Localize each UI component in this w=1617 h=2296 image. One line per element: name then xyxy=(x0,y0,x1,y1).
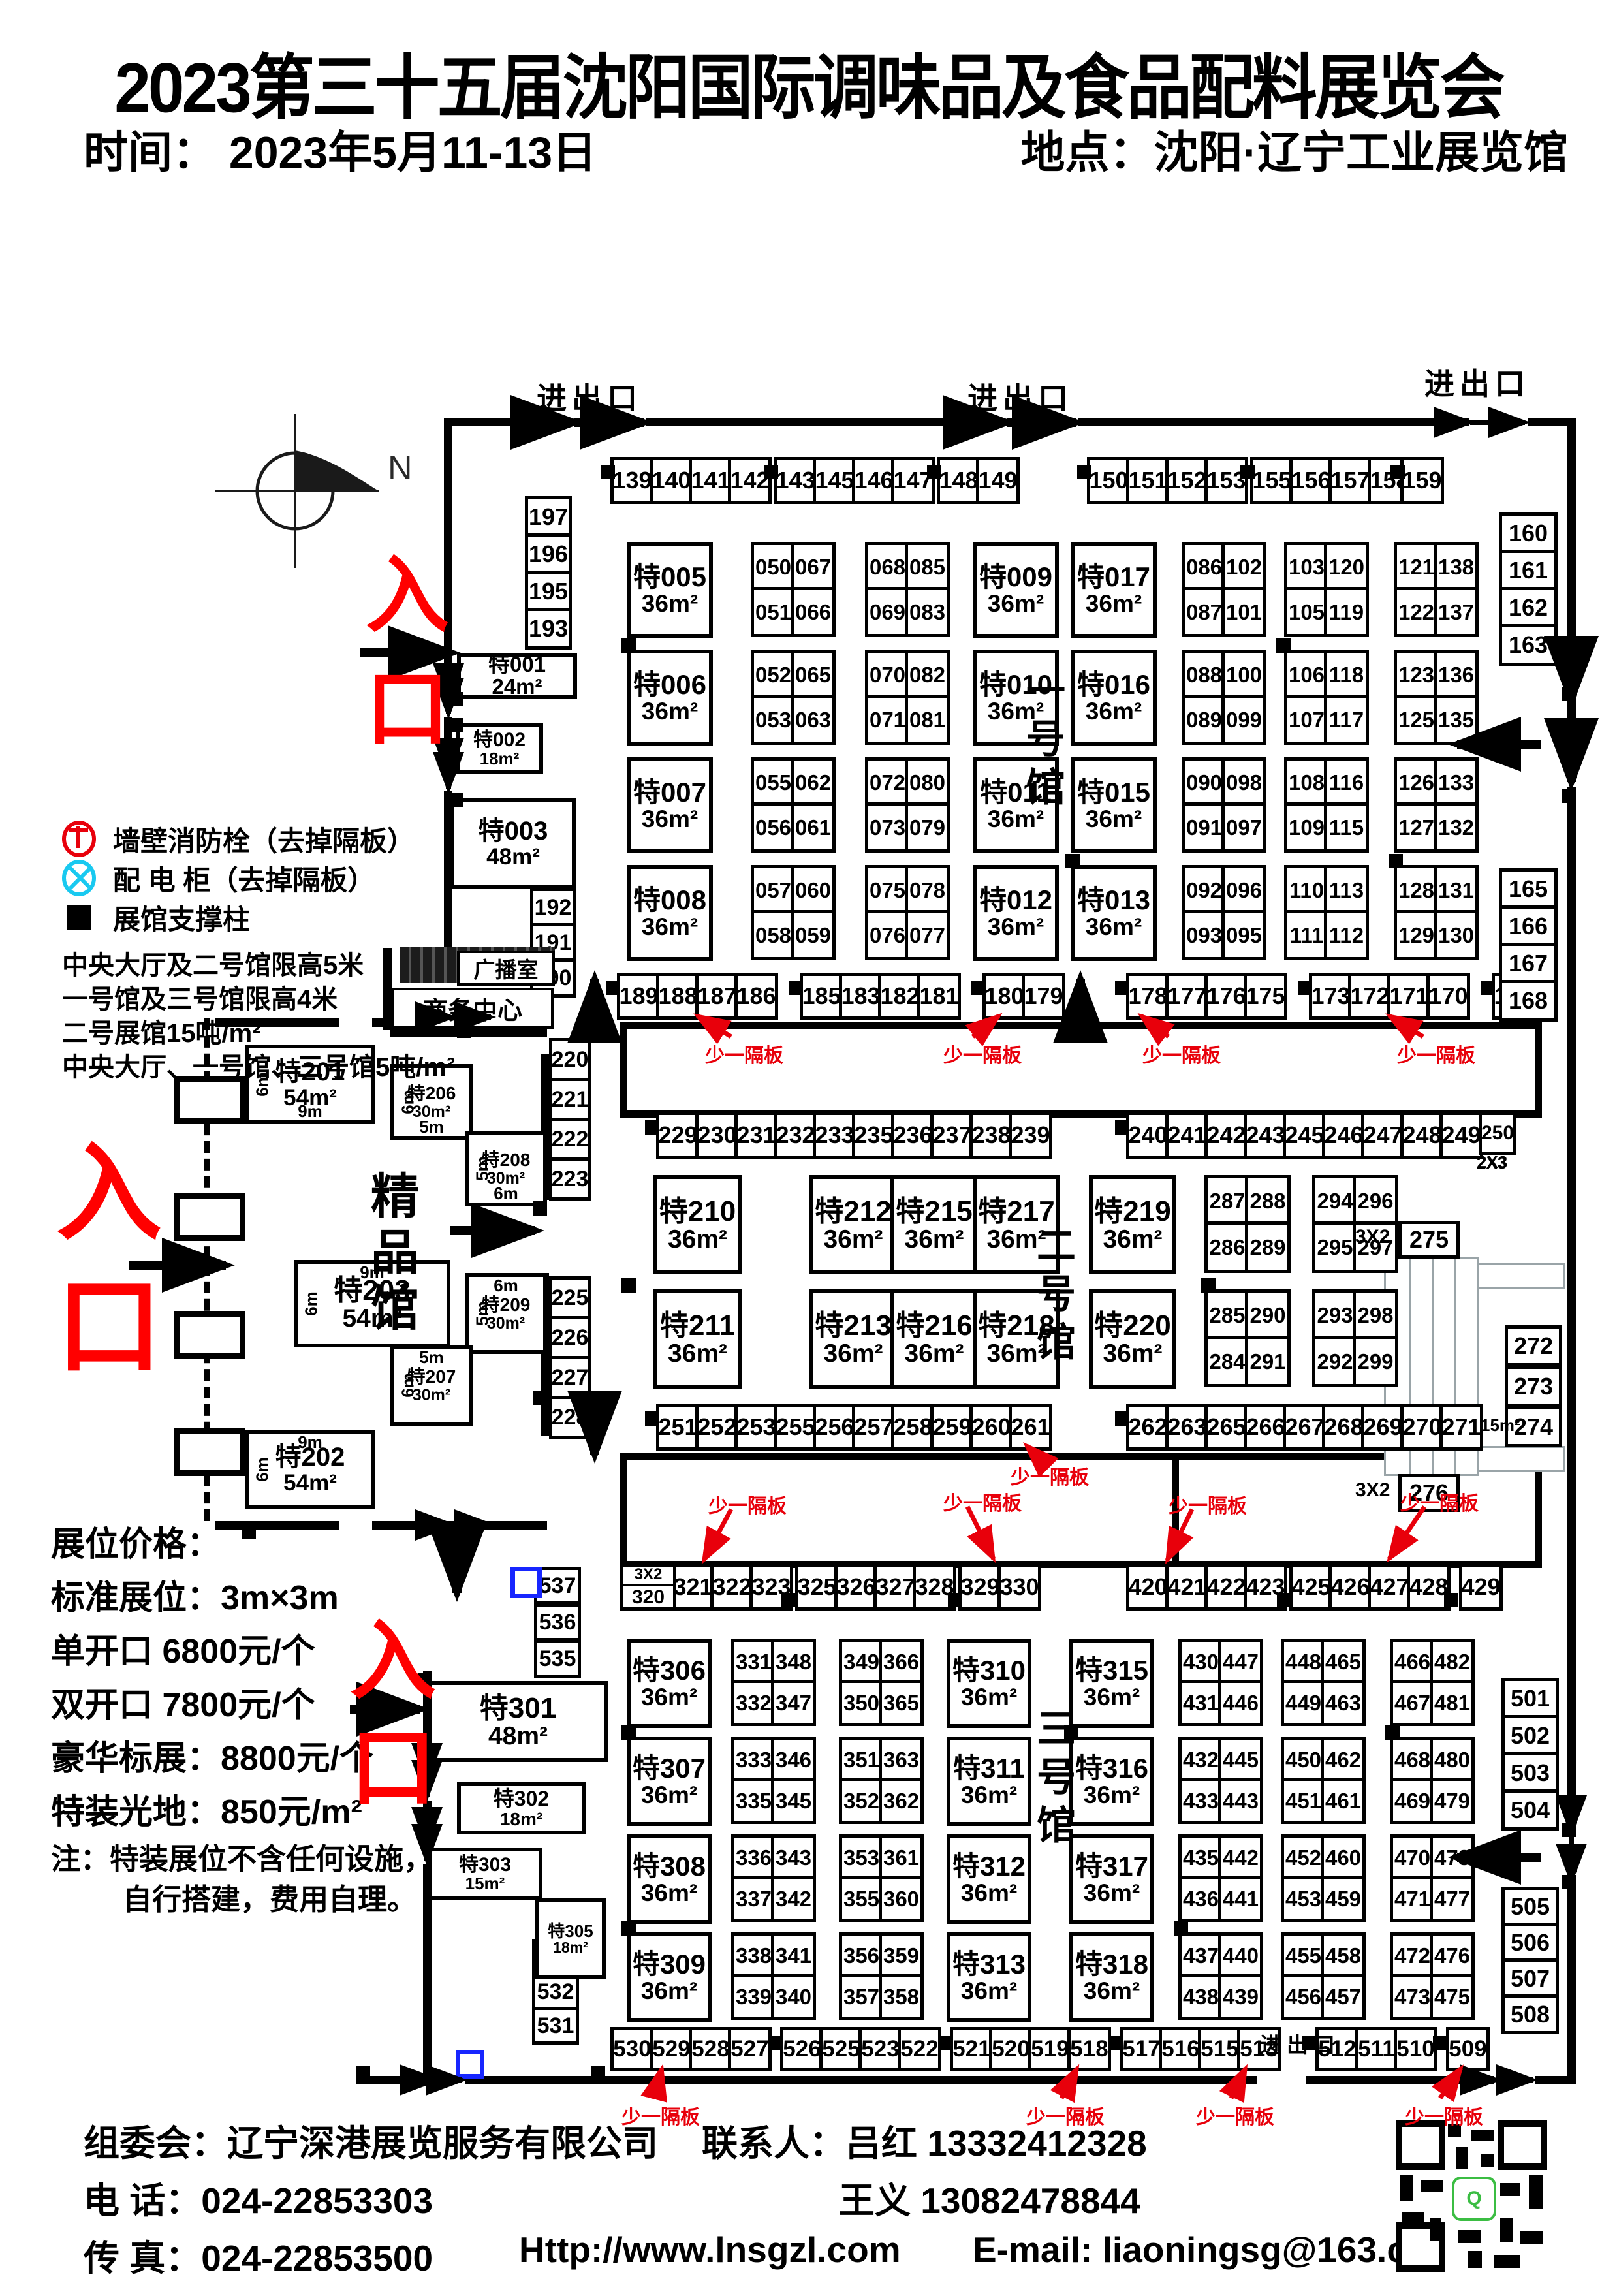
booth-quad: 068085069083 xyxy=(865,542,945,632)
booth-quad: 287288286289 xyxy=(1204,1175,1285,1268)
booth-063: 063 xyxy=(791,695,836,745)
booth-quad: 466482467481 xyxy=(1390,1639,1469,1721)
booth-082: 082 xyxy=(905,650,950,700)
booth-263: 263 xyxy=(1165,1404,1209,1451)
booth-362: 362 xyxy=(879,1778,924,1824)
booth-443: 443 xyxy=(1218,1778,1263,1824)
entrance-exit-label: 进出口 xyxy=(1260,2028,1340,2059)
booth-225: 225 xyxy=(549,1276,591,1319)
booth-480: 480 xyxy=(1430,1737,1475,1783)
booth-239: 239 xyxy=(1009,1112,1052,1159)
booth-439: 439 xyxy=(1218,1974,1263,2020)
booth-119: 119 xyxy=(1324,587,1369,637)
booth-106: 106 xyxy=(1284,650,1329,700)
booth-特306: 特30636m² xyxy=(627,1639,712,1728)
dimension-label: 5m xyxy=(419,1118,444,1136)
booth-079: 079 xyxy=(905,802,950,853)
support-pillar xyxy=(621,1921,636,1936)
booth-159: 159 xyxy=(1400,457,1444,504)
support-pillar xyxy=(1108,2036,1123,2050)
booth-107: 107 xyxy=(1284,695,1329,745)
booth-165: 165 xyxy=(1499,868,1558,910)
booth-059: 059 xyxy=(791,910,836,960)
booth-295: 295 xyxy=(1312,1221,1358,1273)
booth-231: 231 xyxy=(734,1112,778,1159)
booth-181: 181 xyxy=(917,973,961,1020)
booth-455: 455 xyxy=(1281,1932,1326,1979)
booth-quad: 450462451461 xyxy=(1281,1737,1360,1819)
legend-label: 配 电 柜（去掉隔板） xyxy=(113,858,375,898)
support-pillar xyxy=(1115,1120,1129,1135)
booth-291: 291 xyxy=(1245,1336,1291,1387)
entrance-label: 口 xyxy=(56,1277,162,1377)
queue-gate xyxy=(174,1428,245,1476)
missing-panel-note: 少一隔板 xyxy=(943,1039,1022,1068)
booth-326: 326 xyxy=(834,1564,878,1611)
booth-270: 270 xyxy=(1400,1404,1444,1451)
booth-quad: 351363352362 xyxy=(839,1737,918,1819)
booth-466: 466 xyxy=(1390,1639,1435,1685)
tel-line: 电 话：024-22853303 xyxy=(84,2171,433,2224)
wall-segment xyxy=(1567,787,1576,1828)
booth-特316: 特31636m² xyxy=(1069,1737,1154,1826)
booth-518: 518 xyxy=(1067,2027,1111,2071)
booth-121: 121 xyxy=(1394,542,1439,592)
booth-116: 116 xyxy=(1324,757,1369,808)
booth-128: 128 xyxy=(1394,865,1439,915)
booth-506: 506 xyxy=(1501,1923,1559,1962)
booth-139: 139 xyxy=(610,457,654,504)
booth-227: 227 xyxy=(549,1356,591,1399)
booth-192: 192 xyxy=(530,888,576,927)
booth-特006: 特00636m² xyxy=(627,650,713,746)
booth-特318: 特31836m² xyxy=(1069,1932,1154,2022)
booth-288: 288 xyxy=(1245,1175,1291,1227)
booth-357: 357 xyxy=(839,1974,884,2020)
booth-quad: 092096093095 xyxy=(1182,865,1261,955)
booth-284: 284 xyxy=(1204,1336,1250,1387)
dimension-label: 5m xyxy=(473,1156,491,1181)
booth-quad: 472476473475 xyxy=(1390,1932,1469,2015)
booth-477: 477 xyxy=(1430,1876,1475,1922)
legend-item-pillar: 展馆支撑柱 xyxy=(62,898,455,937)
booth-quad: 126133127132 xyxy=(1394,757,1473,847)
booth-quad: 110113111112 xyxy=(1284,865,1364,955)
booth-361: 361 xyxy=(879,1834,924,1881)
booth-267: 267 xyxy=(1283,1404,1327,1451)
booth-099: 099 xyxy=(1221,695,1266,745)
booth-172: 172 xyxy=(1348,973,1392,1020)
booth-125: 125 xyxy=(1394,695,1439,745)
org-line: 组委会：辽宁深港展览服务有限公司 xyxy=(84,2114,658,2166)
booth-quad: 088100089099 xyxy=(1182,650,1261,740)
wechat-qr-code: Q xyxy=(1396,2120,1547,2272)
pillar-icon xyxy=(62,900,96,934)
booth-141: 141 xyxy=(689,457,732,504)
booth-特001: 特001 24m² xyxy=(457,653,577,699)
booth-160: 160 xyxy=(1499,512,1558,554)
booth-quad: 333346335345 xyxy=(731,1737,811,1819)
booth-366: 366 xyxy=(879,1639,924,1685)
booth-特017: 特01736m² xyxy=(1071,542,1157,638)
booth-quad: 103120105119 xyxy=(1284,542,1364,632)
booth-457: 457 xyxy=(1321,1974,1366,2020)
booth-262: 262 xyxy=(1126,1404,1170,1451)
booth-462: 462 xyxy=(1321,1737,1366,1783)
support-pillar xyxy=(591,2066,605,2080)
booth-特219: 特21936m² xyxy=(1089,1175,1176,1274)
missing-panel-note: 少一隔板 xyxy=(705,1039,783,1068)
booth-266: 266 xyxy=(1244,1404,1287,1451)
booth-122: 122 xyxy=(1394,587,1439,637)
booth-071: 071 xyxy=(865,695,910,745)
blue-marker xyxy=(510,1567,542,1598)
booth-350: 350 xyxy=(839,1680,884,1726)
booth-433: 433 xyxy=(1178,1778,1223,1824)
booth-517: 517 xyxy=(1120,2027,1163,2071)
booth-特315: 特31536m² xyxy=(1069,1639,1154,1728)
support-pillar xyxy=(356,2066,370,2080)
booth-360: 360 xyxy=(879,1876,924,1922)
booth-452: 452 xyxy=(1281,1834,1326,1881)
booth-504: 504 xyxy=(1501,1789,1559,1831)
missing-panel-note: 少一隔板 xyxy=(1196,2101,1274,2130)
booth-149: 149 xyxy=(976,457,1020,504)
booth-470: 470 xyxy=(1390,1834,1435,1881)
support-pillar xyxy=(1562,1823,1576,1837)
booth-108: 108 xyxy=(1284,757,1329,808)
booth-465: 465 xyxy=(1321,1639,1366,1685)
booth-197: 197 xyxy=(525,496,572,538)
booth-180: 180 xyxy=(982,973,1026,1020)
dimension-label: 6m xyxy=(302,1291,320,1316)
booth-237: 237 xyxy=(930,1112,974,1159)
booth-162: 162 xyxy=(1499,587,1558,629)
booth-343: 343 xyxy=(771,1834,816,1881)
booth-特215: 特21536m² xyxy=(890,1175,978,1274)
website-link: Http://www.lnsgzl.com xyxy=(519,2229,901,2271)
legend-note: 一号馆及三号馆限高4米 xyxy=(62,983,455,1016)
booth-100: 100 xyxy=(1221,650,1266,700)
booth-090: 090 xyxy=(1182,757,1227,808)
booth-236: 236 xyxy=(891,1112,935,1159)
booth-187: 187 xyxy=(695,973,739,1020)
booth-quad: 075078076077 xyxy=(865,865,945,955)
booth-223: 223 xyxy=(549,1157,591,1201)
support-pillar xyxy=(781,1593,795,1607)
booth-147: 147 xyxy=(891,457,935,504)
booth-quad: 353361355360 xyxy=(839,1834,918,1917)
booth-432: 432 xyxy=(1178,1737,1223,1783)
booth-157: 157 xyxy=(1328,457,1372,504)
legend-note: 中央大厅及二号馆限高5米 xyxy=(62,949,455,983)
booth-170: 170 xyxy=(1426,973,1470,1020)
booth-127: 127 xyxy=(1394,802,1439,853)
wall-segment xyxy=(1567,1883,1576,2083)
legend-label: 展馆支撑柱 xyxy=(113,898,250,937)
booth-458: 458 xyxy=(1321,1932,1366,1979)
power-cabinet-icon xyxy=(62,861,96,895)
booth-091: 091 xyxy=(1182,802,1227,853)
booth-336: 336 xyxy=(731,1834,776,1881)
booth-089: 089 xyxy=(1182,695,1227,745)
booth-109: 109 xyxy=(1284,802,1329,853)
booth-056: 056 xyxy=(751,802,796,853)
booth-287: 287 xyxy=(1204,1175,1250,1227)
booth-510: 510 xyxy=(1394,2027,1437,2071)
booth-260: 260 xyxy=(969,1404,1013,1451)
legend-item-hydrant: 墙壁消防栓（去掉隔板） xyxy=(62,819,455,858)
booth-252: 252 xyxy=(695,1404,739,1451)
map-note: 2X3 xyxy=(1477,1153,1507,1173)
booth-特016: 特01636m² xyxy=(1071,650,1157,746)
hall-label-三号馆: 三号馆 xyxy=(1037,1705,1076,1850)
legend: 墙壁消防栓（去掉隔板） 配 电 柜（去掉隔板） 展馆支撑柱 中央大厅及二号馆限高… xyxy=(62,819,455,1084)
booth-166: 166 xyxy=(1499,905,1558,947)
booth-quad: 070082071081 xyxy=(865,650,945,740)
booth-120: 120 xyxy=(1324,542,1369,592)
support-pillar xyxy=(449,692,463,706)
dimension-label: 6m xyxy=(494,1185,518,1203)
booth-505: 505 xyxy=(1501,1887,1559,1926)
booth-325: 325 xyxy=(795,1564,839,1611)
open-area xyxy=(620,1453,1185,1568)
booth-253: 253 xyxy=(734,1404,778,1451)
support-pillar xyxy=(1385,1725,1400,1740)
booth-299: 299 xyxy=(1353,1336,1398,1387)
wall-segment xyxy=(646,418,1004,426)
booth-146: 146 xyxy=(852,457,896,504)
booth-quad: 050067051066 xyxy=(751,542,830,632)
booth-511: 511 xyxy=(1355,2027,1398,2071)
booth-220: 220 xyxy=(549,1038,591,1081)
booth-085: 085 xyxy=(905,542,950,592)
queue-gate xyxy=(174,1311,245,1359)
dimension-label: 9m xyxy=(298,1103,322,1120)
booth-347: 347 xyxy=(771,1680,816,1726)
support-pillar xyxy=(645,1411,659,1426)
booth-365: 365 xyxy=(879,1680,924,1726)
booth-075: 075 xyxy=(865,865,910,915)
booth-425: 425 xyxy=(1289,1564,1333,1611)
booth-503: 503 xyxy=(1501,1752,1559,1793)
booth-quad: 285290284291 xyxy=(1204,1289,1285,1382)
booth-437: 437 xyxy=(1178,1932,1223,1979)
booth-068: 068 xyxy=(865,542,910,592)
missing-panel-note: 少一隔板 xyxy=(1397,1039,1475,1068)
booth-298: 298 xyxy=(1353,1289,1398,1341)
booth-456: 456 xyxy=(1281,1974,1326,2020)
booth-093: 093 xyxy=(1182,910,1227,960)
booth-特003: 特00348m² xyxy=(450,798,576,889)
booth-468: 468 xyxy=(1390,1737,1435,1783)
booth-265: 265 xyxy=(1204,1404,1248,1451)
booth-145: 145 xyxy=(813,457,856,504)
booth-特015: 特01536m² xyxy=(1071,757,1157,853)
dimension-label: 6m xyxy=(494,1277,518,1295)
booth-特005: 特00536m² xyxy=(627,542,713,638)
booth-222: 222 xyxy=(549,1118,591,1161)
booth-186: 186 xyxy=(734,973,778,1020)
booth-320: 3X2320 xyxy=(620,1564,676,1611)
booth-421: 421 xyxy=(1165,1564,1209,1611)
booth-特216: 特21636m² xyxy=(890,1289,978,1389)
booth-168: 168 xyxy=(1499,980,1558,1022)
booth-235: 235 xyxy=(852,1112,896,1159)
booth-136: 136 xyxy=(1434,650,1479,700)
booth-519: 519 xyxy=(1028,2027,1072,2071)
booth-quad: 470478471477 xyxy=(1390,1834,1469,1917)
booth-296: 296 xyxy=(1353,1175,1398,1227)
booth-195: 195 xyxy=(525,571,572,612)
support-pillar xyxy=(1444,1593,1458,1607)
booth-258: 258 xyxy=(891,1404,935,1451)
booth-241: 241 xyxy=(1165,1112,1209,1159)
booth-060: 060 xyxy=(791,865,836,915)
booth-363: 363 xyxy=(879,1737,924,1783)
booth-特207: 特20730m²5m6m xyxy=(390,1345,473,1426)
booth-069: 069 xyxy=(865,587,910,637)
booth-quad: 448465449463 xyxy=(1281,1639,1360,1721)
booth-337: 337 xyxy=(731,1876,776,1922)
booth-461: 461 xyxy=(1321,1778,1366,1824)
escalator-bar xyxy=(1477,1263,1565,1289)
booth-特309: 特30936m² xyxy=(627,1932,712,2022)
booth-435: 435 xyxy=(1178,1834,1223,1881)
booth-294: 294 xyxy=(1312,1175,1358,1227)
booth-243: 243 xyxy=(1244,1112,1287,1159)
booth-259: 259 xyxy=(930,1404,974,1451)
booth-quad: 072080073079 xyxy=(865,757,945,847)
booth-特301: 特30148m² xyxy=(428,1681,608,1762)
booth-062: 062 xyxy=(791,757,836,808)
booth-189: 189 xyxy=(617,973,661,1020)
booth-248: 248 xyxy=(1400,1112,1444,1159)
booth-052: 052 xyxy=(751,650,796,700)
booth-quad: 052065053063 xyxy=(751,650,830,740)
booth-440: 440 xyxy=(1218,1932,1263,1979)
booth-quad: 356359357358 xyxy=(839,1932,918,2015)
booth-特311: 特31136m² xyxy=(947,1737,1031,1826)
booth-535: 535 xyxy=(534,1640,581,1678)
booth-特312: 特31236m² xyxy=(947,1834,1031,1924)
hall-label-精品馆: 精品馆 xyxy=(371,1169,419,1337)
entrance-label: 入 xyxy=(350,1620,436,1702)
booth-472: 472 xyxy=(1390,1932,1435,1979)
booth-quad: 121138122137 xyxy=(1394,542,1473,632)
booth-171: 171 xyxy=(1387,973,1431,1020)
booth-447: 447 xyxy=(1218,1639,1263,1685)
booth-quad: 123136125135 xyxy=(1394,650,1473,740)
booth-293: 293 xyxy=(1312,1289,1358,1341)
booth-196: 196 xyxy=(525,533,572,575)
booth-193: 193 xyxy=(525,608,572,650)
booth-529: 529 xyxy=(650,2027,693,2071)
wall-segment xyxy=(1535,2076,1576,2084)
booth-502: 502 xyxy=(1501,1715,1559,1756)
support-pillar xyxy=(645,1120,659,1135)
map-note: 3X2 xyxy=(1355,1226,1390,1248)
missing-panel-note: 少一隔板 xyxy=(1400,1487,1479,1516)
booth-327: 327 xyxy=(873,1564,917,1611)
booth-103: 103 xyxy=(1284,542,1329,592)
booth-271: 271 xyxy=(1439,1404,1483,1451)
booth-quad: 468480469479 xyxy=(1390,1737,1469,1819)
booth-430: 430 xyxy=(1178,1639,1223,1685)
support-pillar xyxy=(606,981,620,995)
queue-gate xyxy=(174,1193,245,1241)
booth-148: 148 xyxy=(937,457,981,504)
booth-特213: 特21336m² xyxy=(809,1289,897,1389)
booth-110: 110 xyxy=(1284,865,1329,915)
fire-hydrant-icon xyxy=(62,822,96,856)
booth-238: 238 xyxy=(969,1112,1013,1159)
booth-178: 178 xyxy=(1126,973,1170,1020)
booth-420: 420 xyxy=(1126,1564,1170,1611)
booth-473: 473 xyxy=(1390,1974,1435,2020)
booth-129: 129 xyxy=(1394,910,1439,960)
dimension-label: 6m xyxy=(399,1090,416,1114)
contact-line-2: 王义 13082478844 xyxy=(839,2171,1140,2224)
booth-126: 126 xyxy=(1394,757,1439,808)
booth-232: 232 xyxy=(774,1112,817,1159)
booth-特002: 特00218m² xyxy=(456,723,543,774)
booth-508: 508 xyxy=(1501,1994,1559,2034)
blue-marker xyxy=(456,2050,484,2079)
booth-特305: 特30518m² xyxy=(535,1898,606,1979)
booth-245: 245 xyxy=(1283,1112,1327,1159)
support-pillar xyxy=(1174,1921,1188,1936)
booth-特307: 特30736m² xyxy=(627,1737,712,1826)
booth-359: 359 xyxy=(879,1932,924,1979)
booth-345: 345 xyxy=(771,1778,816,1824)
booth-102: 102 xyxy=(1221,542,1266,592)
booth-quad: 430447431446 xyxy=(1178,1639,1258,1721)
booth-特308: 特30836m² xyxy=(627,1834,712,1924)
booth-097: 097 xyxy=(1221,802,1266,853)
missing-panel-note: 少一隔板 xyxy=(1026,2101,1105,2130)
booth-429: 429 xyxy=(1459,1564,1503,1611)
map-note: 3X2 xyxy=(1355,1479,1390,1502)
hall-label-二号馆: 二号馆 xyxy=(1037,1222,1076,1367)
room-广播室: 广播室 xyxy=(457,951,555,986)
booth-quad: 452460453459 xyxy=(1281,1834,1360,1917)
booth-050: 050 xyxy=(751,542,796,592)
support-pillar xyxy=(1562,1875,1576,1889)
booth-242: 242 xyxy=(1204,1112,1248,1159)
booth-273: 273 xyxy=(1505,1366,1562,1407)
booth-240: 240 xyxy=(1126,1112,1170,1159)
pricing-block: 展位价格： 标准展位：3m×3m 单开口 6800元/个 双开口 7800元/个… xyxy=(51,1518,433,1920)
booth-080: 080 xyxy=(905,757,950,808)
booth-133: 133 xyxy=(1434,757,1479,808)
booth-特313: 特31336m² xyxy=(947,1932,1031,2022)
booth-特317: 特31736m² xyxy=(1069,1834,1154,1924)
booth-521: 521 xyxy=(950,2027,994,2071)
booth-quad: 294296295297 xyxy=(1312,1175,1393,1268)
booth-078: 078 xyxy=(905,865,950,915)
booth-quad: 108116109115 xyxy=(1284,757,1364,847)
support-pillar xyxy=(1390,465,1405,479)
booth-130: 130 xyxy=(1434,910,1479,960)
wall-segment xyxy=(465,2076,1257,2084)
booth-182: 182 xyxy=(878,973,922,1020)
wall-segment xyxy=(1306,2076,1494,2084)
booth-481: 481 xyxy=(1430,1680,1475,1726)
booth-155: 155 xyxy=(1250,457,1294,504)
booth-509: 509 xyxy=(1446,2027,1490,2071)
booth-446: 446 xyxy=(1218,1680,1263,1726)
